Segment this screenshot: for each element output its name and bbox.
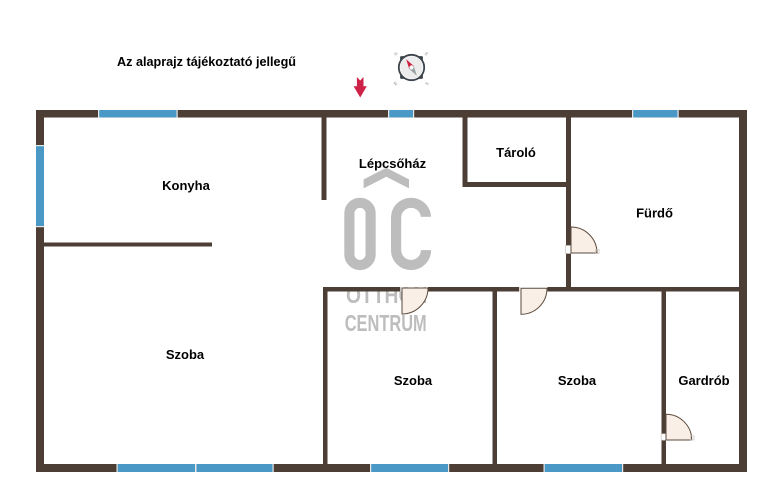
svg-text:Konyha: Konyha: [162, 178, 210, 193]
svg-text:Tároló: Tároló: [496, 145, 536, 160]
svg-text:CENTRUM: CENTRUM: [345, 312, 427, 337]
svg-text:Szoba: Szoba: [558, 373, 597, 388]
svg-text:Az alaprajz tájékoztató jelleg: Az alaprajz tájékoztató jellegű: [117, 54, 296, 69]
svg-text:Szoba: Szoba: [394, 373, 433, 388]
svg-text:Lépcsőház: Lépcsőház: [359, 156, 427, 171]
svg-text:Gardrób: Gardrób: [678, 373, 729, 388]
svg-text:Szoba: Szoba: [166, 347, 205, 362]
svg-text:Fürdő: Fürdő: [636, 206, 673, 221]
